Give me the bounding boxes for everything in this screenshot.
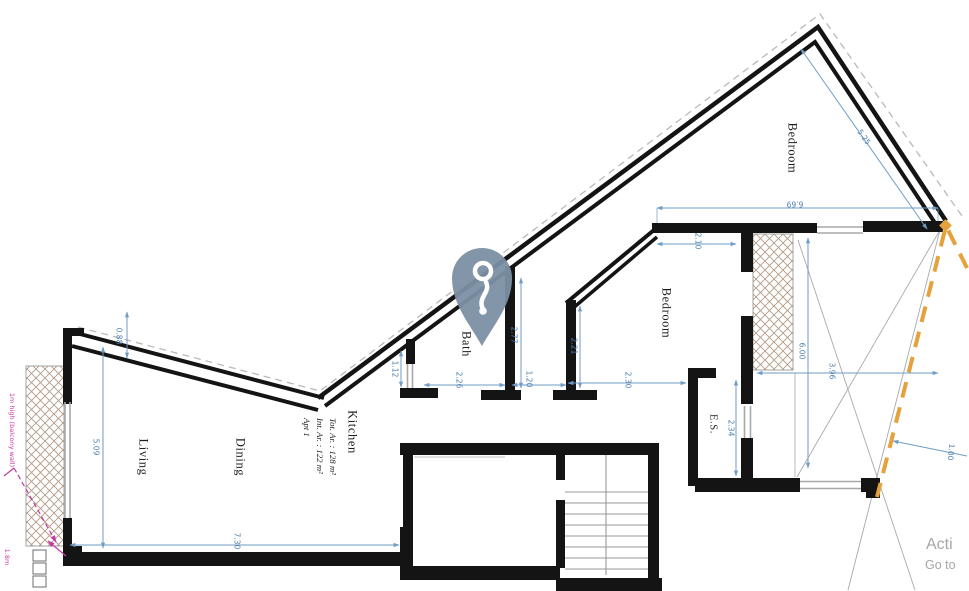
apartment-info-line: Tot. Ar. : 128 m² <box>326 418 339 522</box>
room-label-living: Living <box>136 439 151 476</box>
dim-label-234: 2.34 <box>727 420 736 437</box>
annotation-bottom-left: 1.8m <box>3 549 11 566</box>
room-label-kitchen: Kitchen <box>345 410 360 454</box>
watermark-line2: Go to <box>925 558 956 572</box>
dim-label-112: 1.12 <box>391 361 400 378</box>
dim-label-730: 7.30 <box>233 533 242 550</box>
balcony-hatch <box>26 366 64 546</box>
watermark-line1: Acti <box>926 536 953 554</box>
dimension-lines <box>70 49 967 548</box>
apartment-info: Apt 1 Int. Ar. : 122 m² Tot. Ar. : 128 m… <box>299 418 339 522</box>
dim-label-088: 0.88 <box>115 328 124 345</box>
room-label-bedroom-top: Bedroom <box>785 123 800 174</box>
dim-label-509: 5.09 <box>92 439 101 456</box>
shaft-hatch <box>753 234 793 370</box>
dim-label-600: 6.00 <box>798 343 807 360</box>
floor-plan-drawing <box>0 0 969 591</box>
stairs <box>565 455 648 575</box>
room-label-dining: Dining <box>233 438 248 476</box>
dim-label-100: 1.00 <box>946 443 956 460</box>
dim-label-120: 1.20 <box>525 371 534 388</box>
dim-label-396: 3.96 <box>828 363 837 380</box>
dim-label-221: 2.21 <box>570 338 579 355</box>
planter-boxes <box>33 550 46 587</box>
dim-label-210: 2.10 <box>694 233 703 250</box>
room-label-ensuite: E.S. <box>708 414 719 434</box>
dim-label-226: 2.26 <box>455 372 464 389</box>
apartment-info-line: Int. Ar. : 122 m² <box>314 418 327 522</box>
annotation-balcony-wall: 1m high (balcony wall) <box>8 393 16 467</box>
floor-plan-canvas: Living Dining Kitchen Bath Bedroom Bedro… <box>0 0 969 591</box>
dim-label-230: 2.30 <box>624 372 633 389</box>
dim-label-669: 6.69 <box>787 200 804 209</box>
dim-label-277: 2.77 <box>510 327 519 344</box>
room-label-bath: Bath <box>459 331 474 357</box>
room-label-bedroom-main: Bedroom <box>659 288 674 339</box>
yard-lines <box>795 230 940 590</box>
apartment-info-line: Apt 1 <box>301 418 314 522</box>
